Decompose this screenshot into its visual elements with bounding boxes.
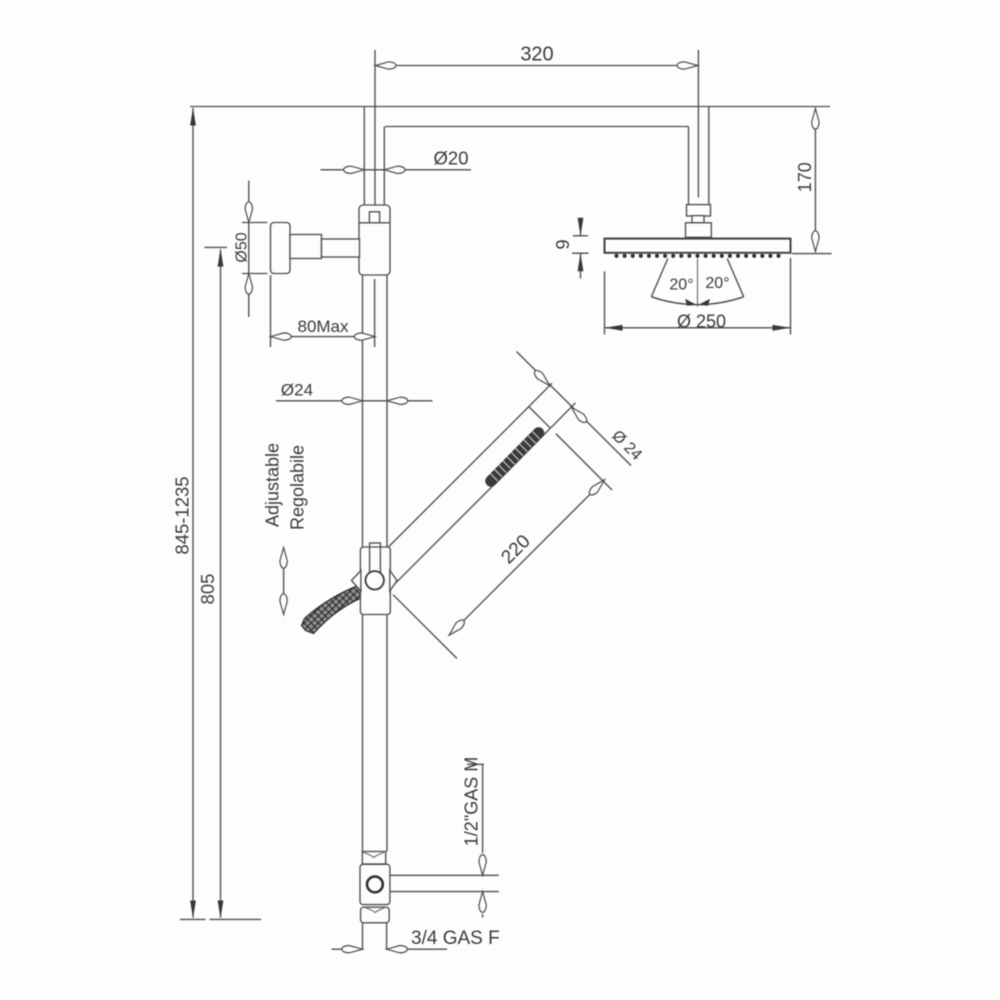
svg-text:Ø 24: Ø 24 xyxy=(608,427,645,464)
svg-text:1/2"GAS M: 1/2"GAS M xyxy=(462,757,482,846)
svg-text:805: 805 xyxy=(197,574,218,605)
svg-text:320: 320 xyxy=(520,44,553,66)
svg-text:Ø50: Ø50 xyxy=(234,232,251,262)
svg-text:Ø24: Ø24 xyxy=(281,381,313,400)
svg-text:20°: 20° xyxy=(705,275,729,292)
svg-text:3/4 GAS F: 3/4 GAS F xyxy=(411,928,500,949)
svg-text:220: 220 xyxy=(497,531,534,568)
svg-text:Ø20: Ø20 xyxy=(434,148,469,169)
svg-text:Regolabile: Regolabile xyxy=(288,445,308,530)
svg-text:9: 9 xyxy=(552,239,573,249)
svg-text:Adjustable: Adjustable xyxy=(263,443,283,527)
svg-text:80Max: 80Max xyxy=(297,317,349,336)
svg-text:Ø 250: Ø 250 xyxy=(677,312,726,332)
svg-text:20°: 20° xyxy=(669,277,693,294)
svg-text:170: 170 xyxy=(795,162,815,192)
svg-text:845-1235: 845-1235 xyxy=(172,476,193,554)
